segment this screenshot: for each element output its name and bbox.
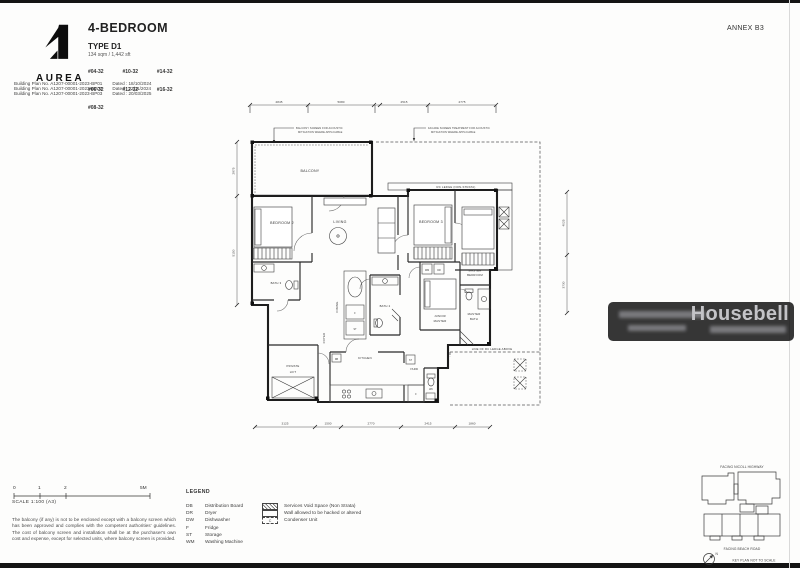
- aurea-logo-mark: [36, 24, 82, 68]
- room-label-yard: YARD: [410, 367, 418, 371]
- building-plan-row: Building Plan No. A1207-00001-2023-BP03D…: [14, 91, 151, 96]
- unit-type: TYPE D1: [88, 42, 121, 51]
- furniture-dining-unit: F ST: [344, 271, 366, 339]
- aurea-logo: AUREA: [36, 24, 82, 80]
- services-void-symbol: [262, 503, 278, 510]
- dim-value: 2515: [401, 100, 408, 104]
- callout-balcony-screen: BALCONY SCREEN FOR ACOUSTIC MITIGATION W…: [273, 126, 343, 144]
- room-label-master-2: BEDROOM: [467, 273, 483, 277]
- legend-desc: Distribution Board: [205, 504, 243, 509]
- room-label-junior-1: JUNIOR: [434, 314, 446, 318]
- legend-abbr: ST: [186, 533, 205, 538]
- legend-desc: Services Void Space (Non Strata): [284, 504, 355, 509]
- legend-row: STStorage: [186, 532, 346, 539]
- dim-value: 3730: [562, 281, 566, 288]
- watermark-blurred-text: [710, 326, 786, 333]
- floorplan-sheet: AUREA 4-BEDROOM TYPE D1 134 sqm / 1,442 …: [0, 0, 800, 568]
- dryer-label: DR: [437, 270, 441, 272]
- building-plan-list: Building Plan No. A1207-00001-2023-BP01D…: [14, 81, 151, 96]
- callout-facade-screen: FACADE SCREEN TREATMENT FOR ACOUSTIC MIT…: [413, 126, 490, 142]
- legend-row: CCondenser Unit: [262, 517, 462, 524]
- floorplan-drawing: 2845 5080 2515 2775 2875 5150 4025 3730 …: [228, 95, 573, 445]
- legend-desc: Dryer: [205, 511, 217, 516]
- legend: LEGEND DBDistribution Board DRDryer DWDi…: [186, 489, 546, 495]
- room-label-bath3: BATH 3: [271, 281, 282, 285]
- legend-row: Wall allowed to be hacked or altered: [262, 510, 462, 517]
- dim-value: 4025: [562, 219, 566, 226]
- unit-area: 134 sqm / 1,442 sft: [88, 52, 131, 58]
- room-label-junior-2: MASTER: [434, 319, 447, 323]
- unit-number: #16-32: [157, 87, 187, 93]
- room-label-dining: DINING: [335, 302, 339, 313]
- legend-desc: Storage: [205, 533, 222, 538]
- scale-tick-label: 2: [64, 486, 67, 491]
- keyplan-bottom-label: FACING BEACH ROAD: [724, 547, 761, 551]
- dim-value: 1860: [469, 422, 476, 426]
- callout-text: MITIGATION WHERE APPLICABLE: [431, 130, 476, 134]
- dim-value: 2775: [459, 100, 466, 104]
- disclaimer-text: The balcony (if any) is not to be enclos…: [12, 517, 176, 542]
- building-plan-no: Building Plan No. A1207-00001-2023-BP03: [14, 91, 102, 96]
- watermark-banner: Housebell: [608, 302, 794, 341]
- dim-value: 1500: [325, 422, 332, 426]
- callout-text: FACADE SCREEN TREATMENT FOR ACOUSTIC: [428, 126, 490, 130]
- legend-row: FFridge: [186, 525, 346, 532]
- watermark-blurred-text: [628, 325, 686, 331]
- dim-value: 2845: [276, 100, 283, 104]
- unit-number: #08-32: [88, 105, 118, 111]
- fridge-label: F: [354, 313, 356, 315]
- page-bottom-border: [0, 563, 800, 568]
- room-label-bath2: BATH 2: [380, 304, 391, 308]
- legend-desc: Condenser Unit: [284, 518, 317, 523]
- north-compass-icon: N: [704, 552, 719, 565]
- dimension-left: 2875 5150: [232, 140, 240, 307]
- legend-desc: Fridge: [205, 526, 219, 531]
- legend-desc: Dishwasher: [205, 518, 230, 523]
- legend-row: WMWashing Machine: [186, 539, 346, 546]
- watermark-brand: Housebell: [691, 303, 789, 326]
- room-label-lift-2: LIFT: [290, 370, 297, 374]
- legend-desc: Wall allowed to be hacked or altered: [284, 511, 361, 516]
- furniture-junior-master: WM DR: [422, 264, 456, 309]
- legend-abbr: WM: [186, 540, 205, 545]
- unit-number: #10-32: [122, 69, 152, 75]
- dim-value: 3125: [282, 422, 289, 426]
- furniture-bedroom2: [253, 207, 292, 259]
- storage-label: ST: [354, 329, 358, 331]
- room-balcony: BALCONY: [252, 142, 372, 196]
- page-top-border: [0, 0, 800, 3]
- furniture-bedroom3: [414, 205, 452, 259]
- ledge-above-label: LINE OF RC LEDGE ABOVE: [472, 347, 513, 351]
- north-label: N: [716, 552, 719, 556]
- callout-text: BALCONY SCREEN FOR ACOUSTIC: [296, 126, 343, 130]
- furniture-bath3: [254, 264, 298, 289]
- room-label-master-1: MASTER: [469, 269, 482, 273]
- db-label: DB: [335, 359, 339, 361]
- room-label-mbath-1: MASTER: [468, 312, 481, 316]
- scale-label: SCALE 1:100 (A3): [12, 500, 56, 505]
- storage-label: ST: [409, 360, 413, 362]
- legend-abbr: DR: [186, 511, 205, 516]
- room-label-kitchen: KITCHEN: [358, 356, 372, 360]
- legend-title: LEGEND: [186, 489, 546, 495]
- dim-value: 2415: [425, 422, 432, 426]
- room-label-foyer: FOYER: [322, 333, 326, 344]
- furniture-kitchen: F DB ST: [330, 354, 435, 402]
- dim-value: 5150: [232, 249, 236, 256]
- facade-screen-dashed-line: [376, 142, 540, 405]
- rc-ledge-label: RC LEDGE (NON-STRATA): [437, 185, 476, 189]
- highlighted-unit: [738, 472, 780, 504]
- page-title: 4-BEDROOM: [88, 21, 168, 35]
- dim-value: 2875: [232, 167, 236, 174]
- legend-desc: Washing Machine: [205, 540, 243, 545]
- room-label-lift-1: PRIVATE: [287, 364, 300, 368]
- furniture-bath2: [372, 277, 400, 327]
- scale-bar-line: [12, 493, 172, 499]
- scale-tick-label: 5M: [140, 486, 147, 491]
- rc-ledge-above-dashed: [450, 352, 540, 405]
- unit-number: #14-32: [157, 69, 187, 75]
- furniture-private-lift: [272, 377, 314, 398]
- dimension-right: 4025 3730: [562, 190, 570, 315]
- condenser-unit-symbol: C: [262, 517, 278, 524]
- keyplan-top-label: FACING NICOLL HIGHWAY: [720, 465, 764, 469]
- washer-label: WM: [425, 270, 429, 272]
- annex-label: ANNEX B3: [727, 25, 764, 32]
- key-plan: FACING NICOLL HIGHWAY FACING BEACH ROAD …: [692, 460, 792, 566]
- condenser-abbr: C: [269, 519, 272, 523]
- legend-symbol-column: Services Void Space (Non Strata) Wall al…: [262, 503, 462, 525]
- legend-abbr: F: [186, 526, 205, 531]
- scale-bar: 0 1 2 5M SCALE 1:100 (A3): [12, 486, 172, 508]
- furniture-living: [324, 198, 395, 253]
- dim-value: 2770: [368, 422, 375, 426]
- legend-row: Services Void Space (Non Strata): [262, 503, 462, 510]
- building-plan-date: Dated : 20/03/2025: [112, 91, 151, 96]
- scale-tick-label: 1: [38, 486, 41, 491]
- fridge-label: F: [415, 394, 417, 396]
- legend-abbr: DB: [186, 504, 205, 509]
- unit-number: #04-32: [88, 69, 118, 75]
- dimension-top: 2845 5080 2515 2775: [248, 100, 498, 113]
- scale-tick-label: 0: [13, 486, 16, 491]
- dim-value: 5080: [338, 100, 345, 104]
- keyplan-building-outline: [702, 472, 780, 540]
- room-label: BALCONY: [301, 169, 320, 173]
- hackable-wall-symbol: [262, 510, 278, 517]
- room-label-living: LIVING: [333, 220, 346, 224]
- room-label-bedroom2: BEDROOM 2: [270, 221, 294, 225]
- logo-a-foot: [50, 51, 58, 59]
- room-label-bedroom3: BEDROOM 3: [419, 220, 443, 224]
- room-label-mbath-2: BATH: [470, 317, 478, 321]
- furniture-master-bedroom: [462, 207, 494, 265]
- dimension-bottom: 3125 1500 2770 2415 1860: [253, 422, 492, 430]
- callout-text: MITIGATION WHERE APPLICABLE: [298, 130, 343, 134]
- room-label-wc: WC: [429, 389, 433, 391]
- legend-abbr: DW: [186, 518, 205, 523]
- keyplan-note: KEY PLAN NOT TO SCALE: [732, 559, 776, 563]
